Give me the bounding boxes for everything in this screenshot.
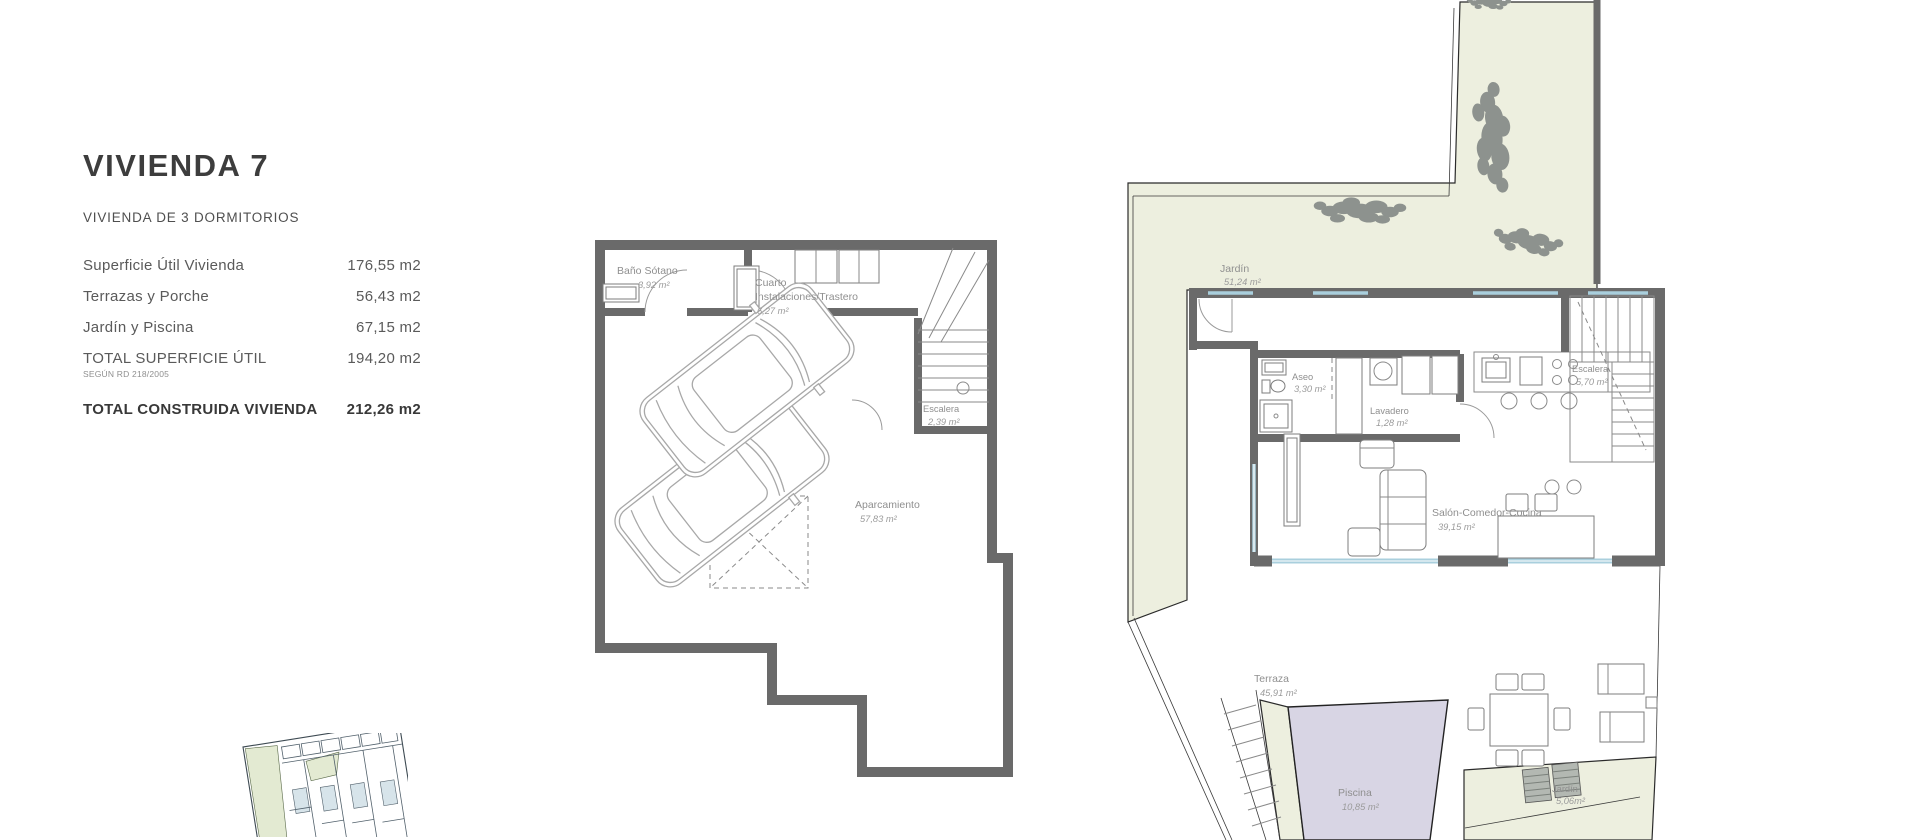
storage-shelves xyxy=(795,250,879,283)
label-escalera-ground: Escalera xyxy=(1572,364,1609,374)
info-panel: VIVIENDA 7 VIVIENDA DE 3 DORMITORIOS Sup… xyxy=(83,148,421,432)
aseo-fixtures xyxy=(1260,360,1292,432)
spec-value: 194,20 m2 xyxy=(347,350,421,367)
spec-row-total-util: TOTAL SUPERFICIE ÚTIL SEGÚN RD 218/2005 … xyxy=(83,350,421,379)
area-bano-sotano: 3,92 m² xyxy=(638,280,670,290)
spec-value: 67,15 m2 xyxy=(356,319,421,336)
area-piscina: 10,85 m² xyxy=(1342,802,1380,812)
label-salon: Salón-Comedor-Cocina xyxy=(1432,507,1542,519)
area-aparcamiento: 57,83 m² xyxy=(860,514,898,524)
total-util-label: TOTAL SUPERFICIE ÚTIL xyxy=(83,350,267,367)
spec-value: 212,26 m2 xyxy=(347,401,421,418)
spec-label: Jardín y Piscina xyxy=(83,319,194,336)
spec-row-terrazas-porche: Terrazas y Porche 56,43 m2 xyxy=(83,288,421,305)
label-cuarto-line1: Cuarto xyxy=(755,277,787,289)
pool-shape xyxy=(1288,700,1448,840)
area-escalera-sotano: 2,39 m² xyxy=(927,417,960,427)
lavadero-fixtures xyxy=(1370,356,1458,394)
spec-value: 176,55 m2 xyxy=(347,257,421,274)
label-terraza: Terraza xyxy=(1254,673,1289,685)
regulation-note: SEGÚN RD 218/2005 xyxy=(83,369,267,379)
label-escalera-sotano: Escalera xyxy=(923,404,960,414)
page-subtitle: VIVIENDA DE 3 DORMITORIOS xyxy=(83,210,421,225)
area-lavadero: 1,28 m² xyxy=(1376,418,1408,428)
spec-label: Superficie Útil Vivienda xyxy=(83,257,244,274)
spec-row-superficie-util: Superficie Útil Vivienda 176,55 m2 xyxy=(83,257,421,274)
page: { "info_panel": { "title": "VIVIENDA 7",… xyxy=(0,0,1920,837)
area-terraza: 45,91 m² xyxy=(1260,688,1298,698)
terrace-furniture xyxy=(1468,664,1657,766)
label-aparcamiento: Aparcamiento xyxy=(855,499,920,511)
label-lavadero: Lavadero xyxy=(1370,406,1409,416)
site-key-plan-thumbnail xyxy=(233,733,408,837)
spec-label: TOTAL SUPERFICIE ÚTIL SEGÚN RD 218/2005 xyxy=(83,350,267,379)
area-salon: 39,15 m² xyxy=(1438,522,1476,532)
living-room-furniture xyxy=(1284,434,1594,558)
terrace-right-boundary xyxy=(1656,566,1660,757)
area-cuarto: 6,27 m² xyxy=(757,306,789,316)
spec-row-total-construida: TOTAL CONSTRUIDA VIVIENDA 212,26 m2 xyxy=(83,401,421,418)
page-title: VIVIENDA 7 xyxy=(83,148,421,184)
spec-label: TOTAL CONSTRUIDA VIVIENDA xyxy=(83,401,317,418)
ground-stairs xyxy=(1565,290,1654,462)
area-escalera-ground: 5,70 m² xyxy=(1576,377,1608,387)
spec-label: Terrazas y Porche xyxy=(83,288,209,305)
ground-floor-plan: Jardín 51,24 m² Aseo 3,30 m² Lavadero 1,… xyxy=(1108,0,1668,840)
label-bano-sotano: Baño Sótano xyxy=(617,265,678,277)
area-jardin-small: 5,06m² xyxy=(1556,796,1586,806)
label-piscina: Piscina xyxy=(1338,787,1372,799)
label-aseo: Aseo xyxy=(1292,372,1313,382)
basement-floor-plan: Baño Sótano 3,92 m² Cuarto Instalaciones… xyxy=(585,238,1019,784)
label-jardin-small: Jardín xyxy=(1552,784,1578,794)
label-cuarto-line2: Instalaciones/Trastero xyxy=(755,291,858,303)
bathroom-sink xyxy=(603,284,639,302)
site-plan-group xyxy=(243,733,408,837)
spec-row-jardin-piscina: Jardín y Piscina 67,15 m2 xyxy=(83,319,421,336)
area-spec-table: Superficie Útil Vivienda 176,55 m2 Terra… xyxy=(83,257,421,418)
area-jardin-main: 51,24 m² xyxy=(1224,277,1262,287)
label-jardin-main: Jardín xyxy=(1220,263,1249,275)
basement-stairs xyxy=(918,248,989,402)
spec-value: 56,43 m2 xyxy=(356,288,421,305)
area-aseo: 3,30 m² xyxy=(1294,384,1326,394)
